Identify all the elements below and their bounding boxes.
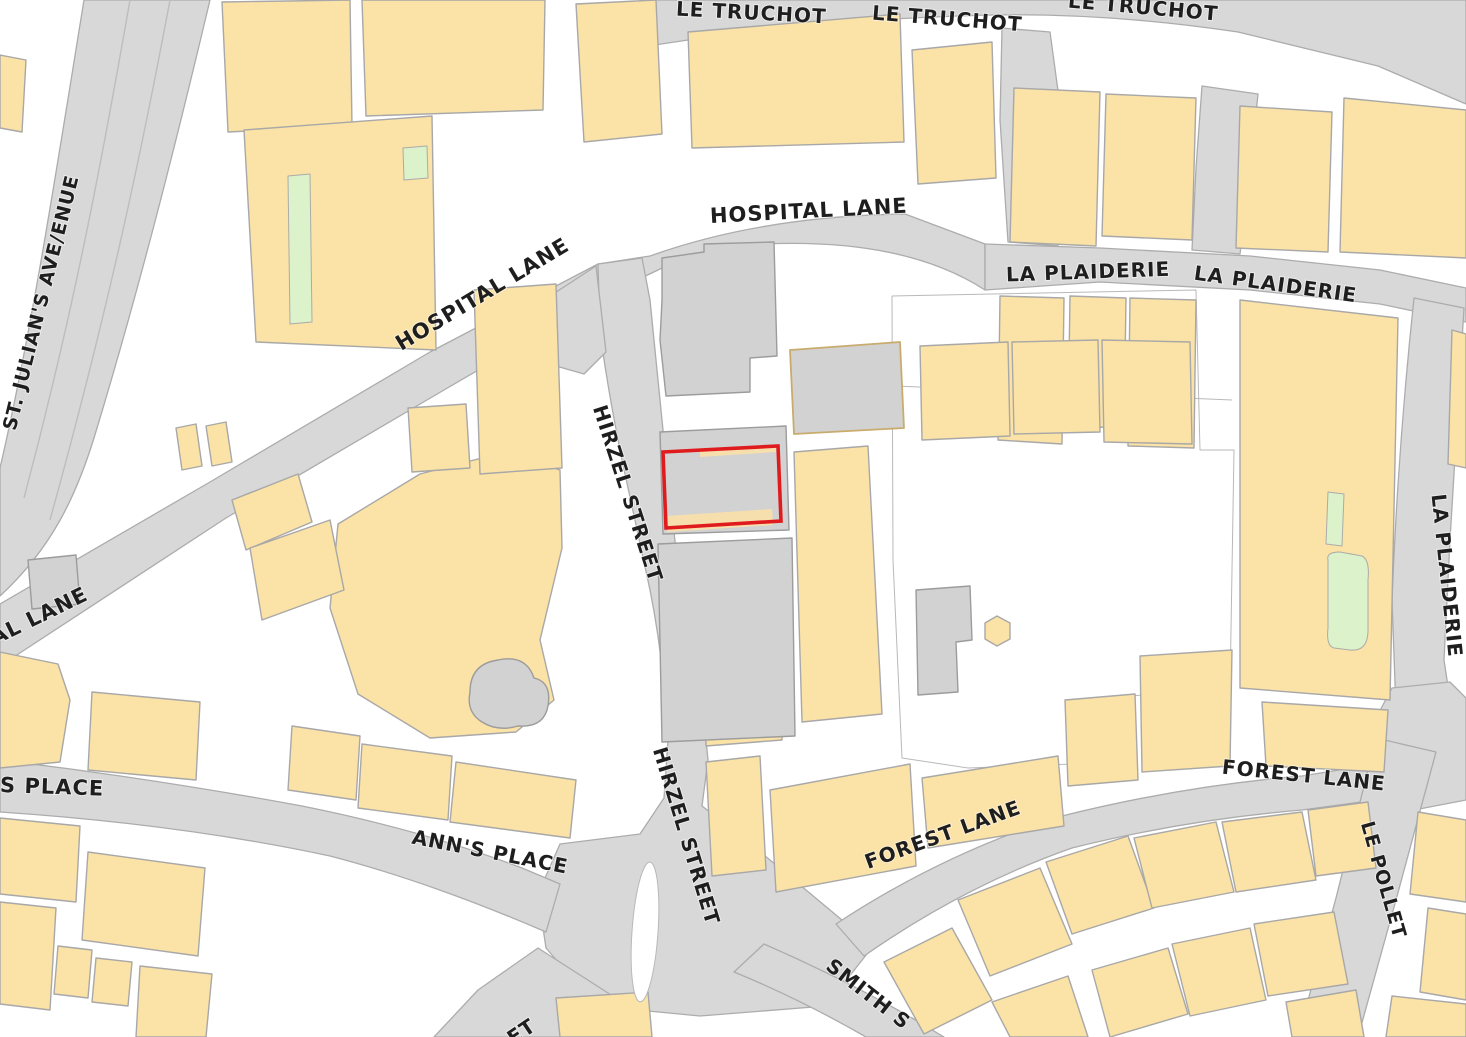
building [1236,106,1332,252]
building [206,422,232,466]
building [82,852,205,956]
building [450,762,576,838]
building [0,818,80,902]
building [176,424,202,470]
building [0,902,56,1010]
building [1240,300,1398,700]
building [576,0,662,142]
street-label: LE TRUCHOT [1067,0,1219,26]
building [1012,340,1100,434]
building [1410,812,1466,902]
building [1065,694,1138,786]
building [1102,94,1196,240]
building [1420,908,1466,1000]
building [358,744,452,820]
building [474,284,562,474]
building [1134,822,1234,908]
building [362,0,545,116]
parcel-south-of-plot [658,538,795,742]
map-canvas[interactable]: LE TRUCHOTLE TRUCHOTLE TRUCHOTHOSPITAL L… [0,0,1466,1037]
building [0,55,26,132]
map-viewport[interactable]: LE TRUCHOTLE TRUCHOTLE TRUCHOTHOSPITAL L… [0,0,1466,1037]
building [92,958,132,1006]
building [1102,340,1192,444]
green-space-0 [288,174,312,324]
parking-parcel-north [660,242,777,396]
building [1340,98,1466,258]
building [770,764,916,892]
green-space-3 [1328,552,1369,650]
building [222,0,352,132]
green-space-1 [403,146,428,180]
building [1386,996,1466,1037]
building [992,976,1088,1037]
building [985,616,1010,646]
street-label: S PLACE [0,773,105,801]
building [706,756,766,876]
building [136,966,212,1037]
building [1448,330,1466,468]
building [1222,812,1316,892]
green-space-2 [1326,492,1344,546]
building [920,342,1010,440]
building [88,692,200,780]
building [0,652,70,768]
building [54,946,92,998]
building [1172,928,1266,1016]
building [1092,948,1188,1037]
building [688,14,904,148]
building [408,404,470,472]
building [1010,88,1100,246]
building [1286,990,1364,1037]
building [1254,912,1348,996]
building [794,446,882,722]
building [288,726,360,800]
parcel-tan-edge [790,342,904,434]
building [1140,650,1232,772]
building [912,42,996,184]
